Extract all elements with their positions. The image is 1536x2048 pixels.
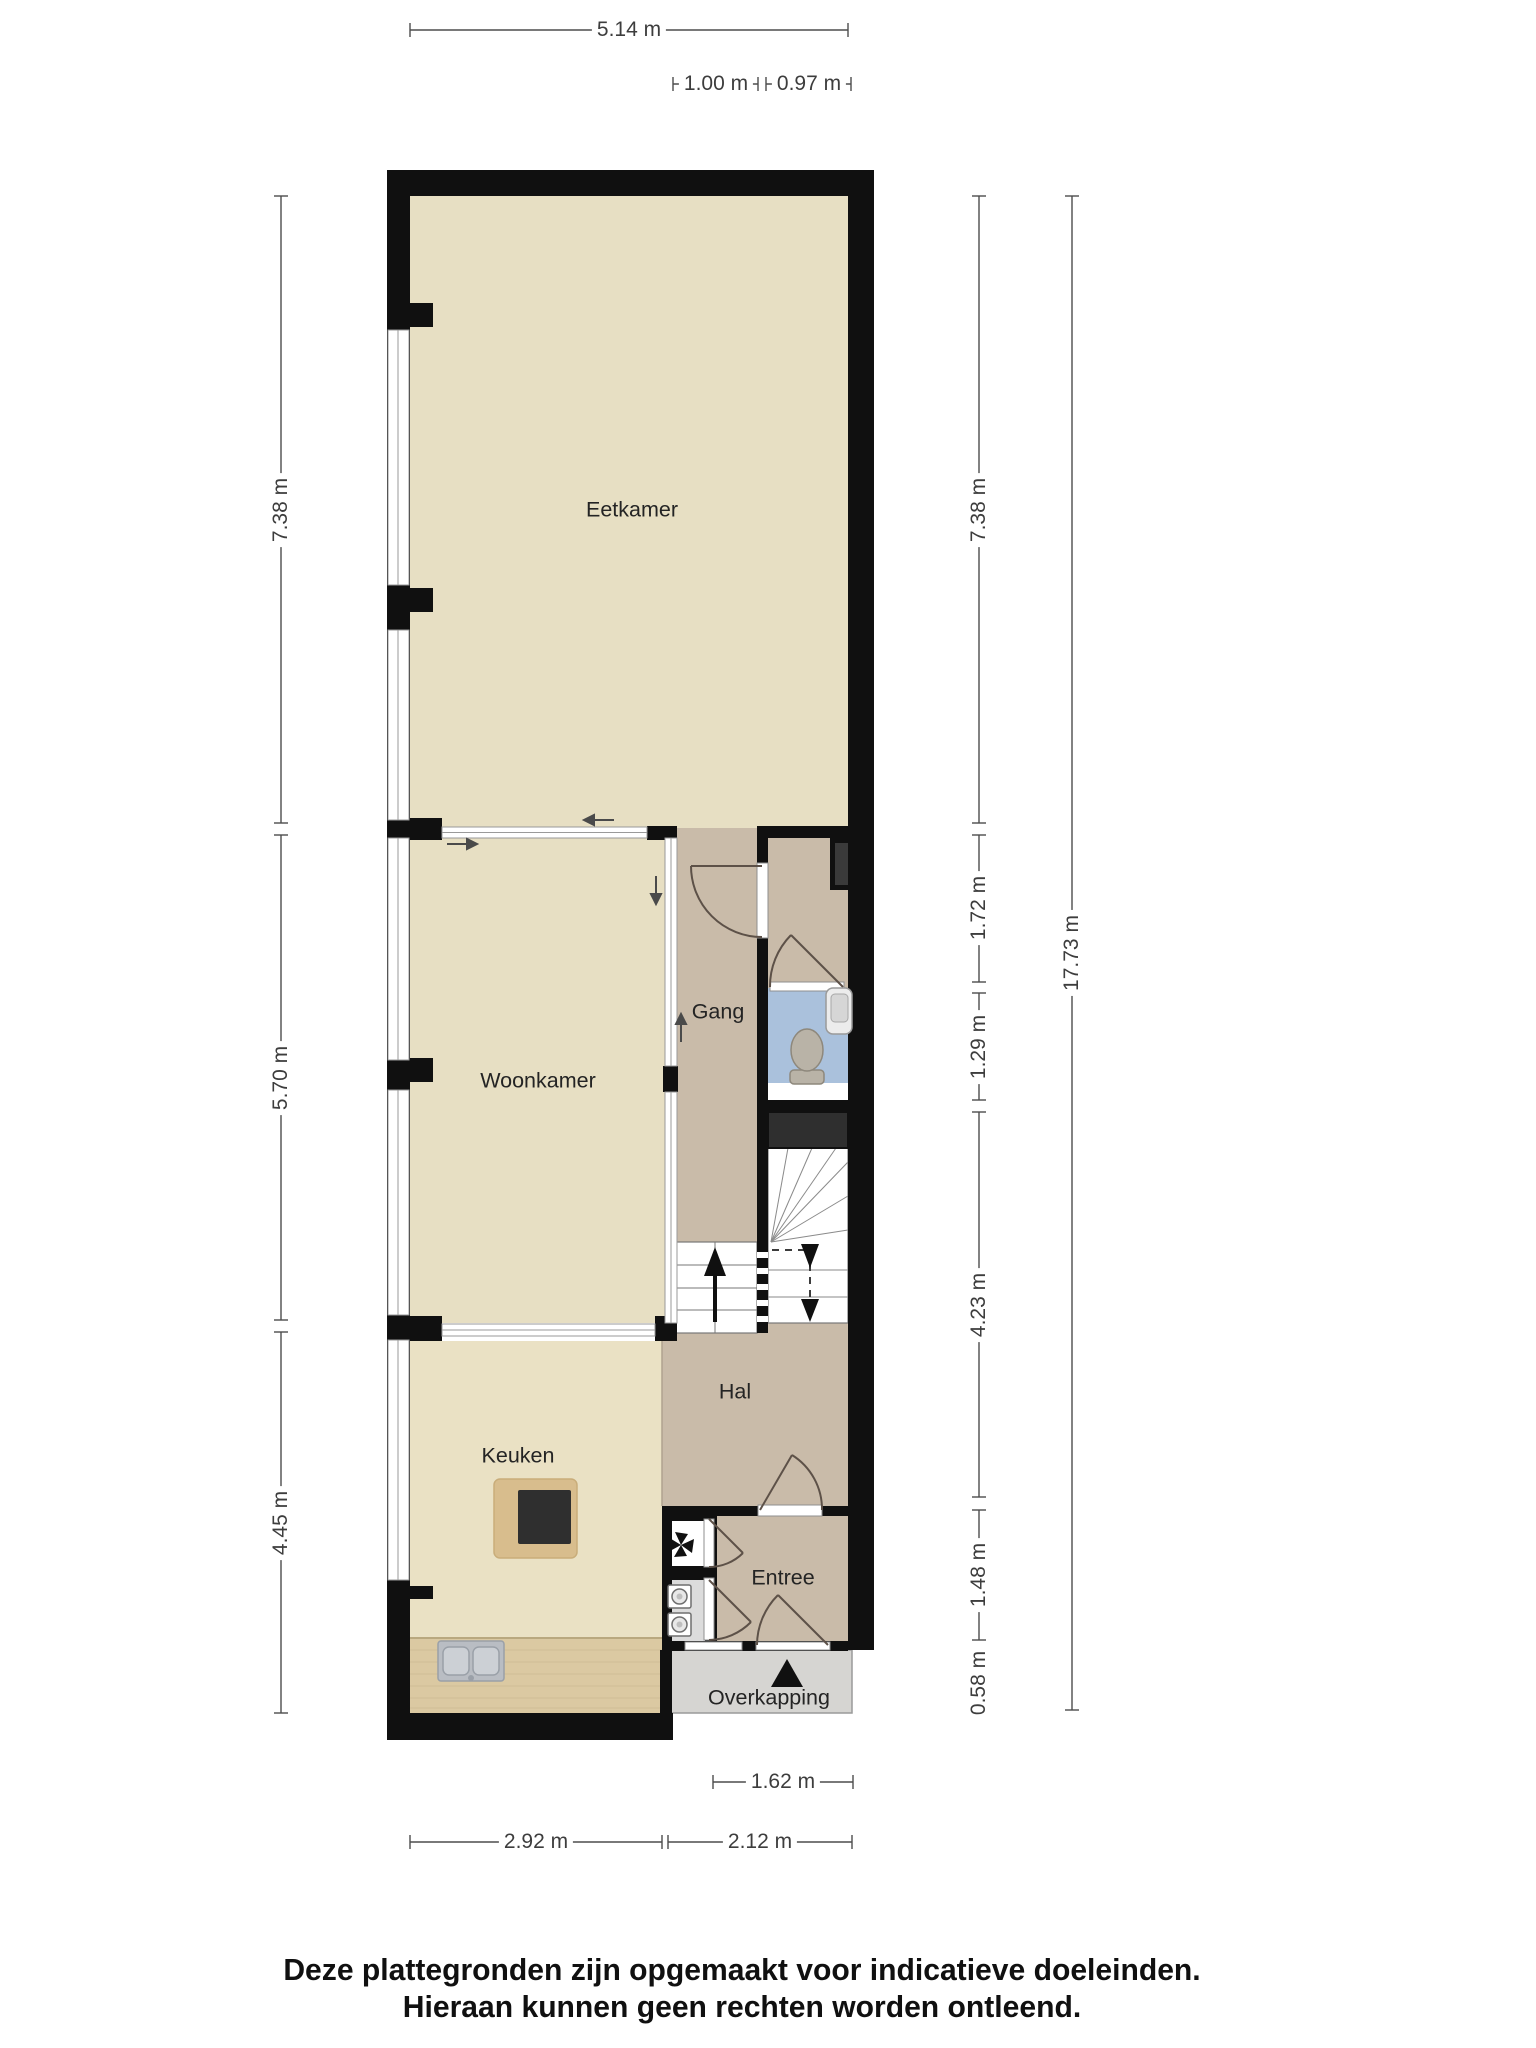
floorplan-page: Eetkamer Woonkamer Gang Keuken Hal Entre… (0, 0, 1536, 2048)
dim-left-eetkamer: 7.38 m (268, 473, 294, 547)
dim-right-entree: 1.48 m (966, 1538, 992, 1612)
room-label-keuken: Keuken (482, 1444, 555, 1469)
dim-top-width: 5.14 m (592, 17, 666, 43)
floor-gang (673, 828, 757, 1242)
washbasin-icon (826, 988, 852, 1034)
dim-right-hal: 4.23 m (966, 1268, 992, 1342)
floors (410, 196, 852, 1713)
dim-right-toilet: 1.29 m (966, 1010, 992, 1084)
window (388, 1340, 409, 1580)
sidelight-window (685, 1642, 742, 1650)
room-label-eetkamer: Eetkamer (586, 498, 678, 523)
dim-right-gang: 1.72 m (966, 871, 992, 945)
disclaimer-line2: Hieraan kunnen geen rechten worden ontle… (22, 1988, 1461, 2025)
wall-bottom (387, 1713, 673, 1740)
dim-right-eetkamer: 7.38 m (966, 473, 992, 547)
dim-total-height: 17.73 m (1059, 910, 1085, 996)
window (388, 838, 409, 1060)
room-label-hal: Hal (719, 1380, 751, 1405)
dim-left-woonkamer: 5.70 m (268, 1041, 294, 1115)
floor-plan-canvas (0, 0, 1536, 2048)
washing-machine-icon (668, 1585, 691, 1608)
room-label-gang: Gang (692, 1000, 745, 1025)
wall-top (387, 170, 874, 196)
window (388, 1090, 409, 1315)
wall-right (848, 170, 874, 1650)
window (388, 330, 409, 585)
door-frame-front (756, 1642, 830, 1650)
door-frame-closet (704, 1578, 714, 1640)
winder-stairs (768, 1148, 848, 1323)
cooktop-icon (518, 1490, 571, 1544)
disclaimer-line1: Deze plattegronden zijn opgemaakt voor i… (22, 1951, 1461, 1988)
dim-overkapping-width: 1.62 m (746, 1769, 820, 1795)
sliding-glass-eetkamer-woonkamer (442, 827, 647, 838)
dim-toilet-width: 0.97 m (772, 71, 846, 97)
dim-keuken-width: 2.92 m (499, 1829, 573, 1855)
dim-hal-width: 2.12 m (723, 1829, 797, 1855)
straight-stairs (673, 1242, 757, 1333)
dim-left-keuken: 4.45 m (268, 1486, 294, 1560)
door-frame-hal-entree (758, 1505, 822, 1516)
dim-gang-width: 1.00 m (679, 71, 753, 97)
dryer-icon (668, 1613, 691, 1636)
floor-hal (662, 1323, 848, 1506)
room-label-entree: Entree (751, 1566, 814, 1591)
duct-shaft (835, 843, 848, 885)
double-sink-icon (438, 1641, 504, 1681)
stair-comb (757, 1242, 768, 1333)
door-frame-meterkast (704, 1519, 714, 1567)
window (388, 630, 409, 820)
door-frame-gang-vestibule (757, 863, 768, 938)
dim-right-overkapping: 0.58 m (966, 1646, 992, 1720)
toilet-shelf (768, 1083, 848, 1100)
toilet-icon (790, 1029, 824, 1084)
room-label-woonkamer: Woonkamer (480, 1069, 596, 1094)
stair-void (768, 1112, 848, 1148)
disclaimer: Deze plattegronden zijn opgemaakt voor i… (22, 1951, 1461, 2025)
sliding-glass-woonkamer-keuken (442, 1324, 655, 1336)
windows-left-wall (388, 330, 409, 1580)
room-label-overkapping: Overkapping (708, 1686, 830, 1711)
kitchen-counter (410, 1637, 662, 1713)
kitchen-island (494, 1479, 577, 1558)
